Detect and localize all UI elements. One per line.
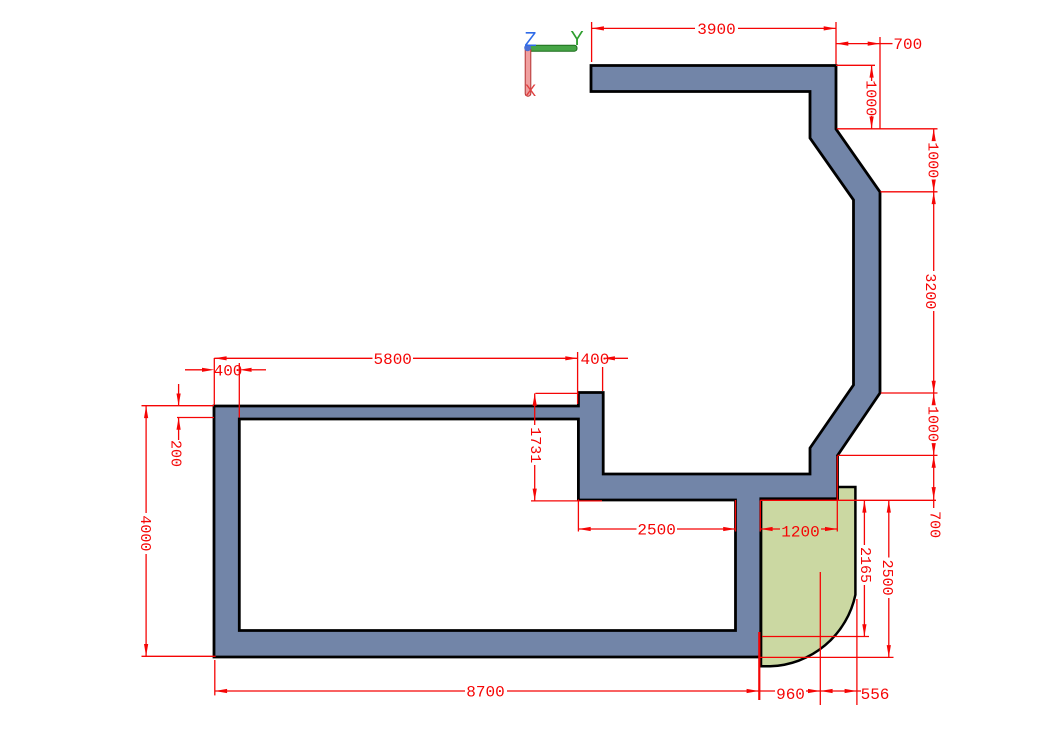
svg-text:1731: 1731	[526, 427, 543, 463]
svg-text:2165: 2165	[856, 547, 873, 583]
svg-text:556: 556	[861, 686, 890, 704]
svg-text:1000: 1000	[861, 80, 878, 116]
svg-text:1000: 1000	[924, 406, 941, 442]
svg-text:2500: 2500	[878, 560, 895, 596]
svg-text:4000: 4000	[136, 515, 153, 551]
svg-text:X: X	[525, 81, 536, 100]
svg-text:Y: Y	[570, 28, 583, 50]
svg-text:1200: 1200	[781, 523, 819, 541]
svg-text:3200: 3200	[921, 273, 938, 309]
svg-text:700: 700	[925, 511, 942, 538]
svg-text:3900: 3900	[697, 21, 735, 39]
svg-text:700: 700	[893, 36, 922, 54]
svg-text:200: 200	[166, 440, 183, 467]
svg-text:1000: 1000	[924, 142, 941, 178]
svg-text:400: 400	[580, 351, 609, 369]
svg-text:Z: Z	[524, 29, 536, 51]
svg-text:2500: 2500	[637, 522, 675, 540]
svg-text:5800: 5800	[373, 351, 411, 369]
svg-text:960: 960	[776, 686, 805, 704]
svg-text:400: 400	[214, 362, 243, 380]
svg-text:8700: 8700	[466, 684, 504, 702]
